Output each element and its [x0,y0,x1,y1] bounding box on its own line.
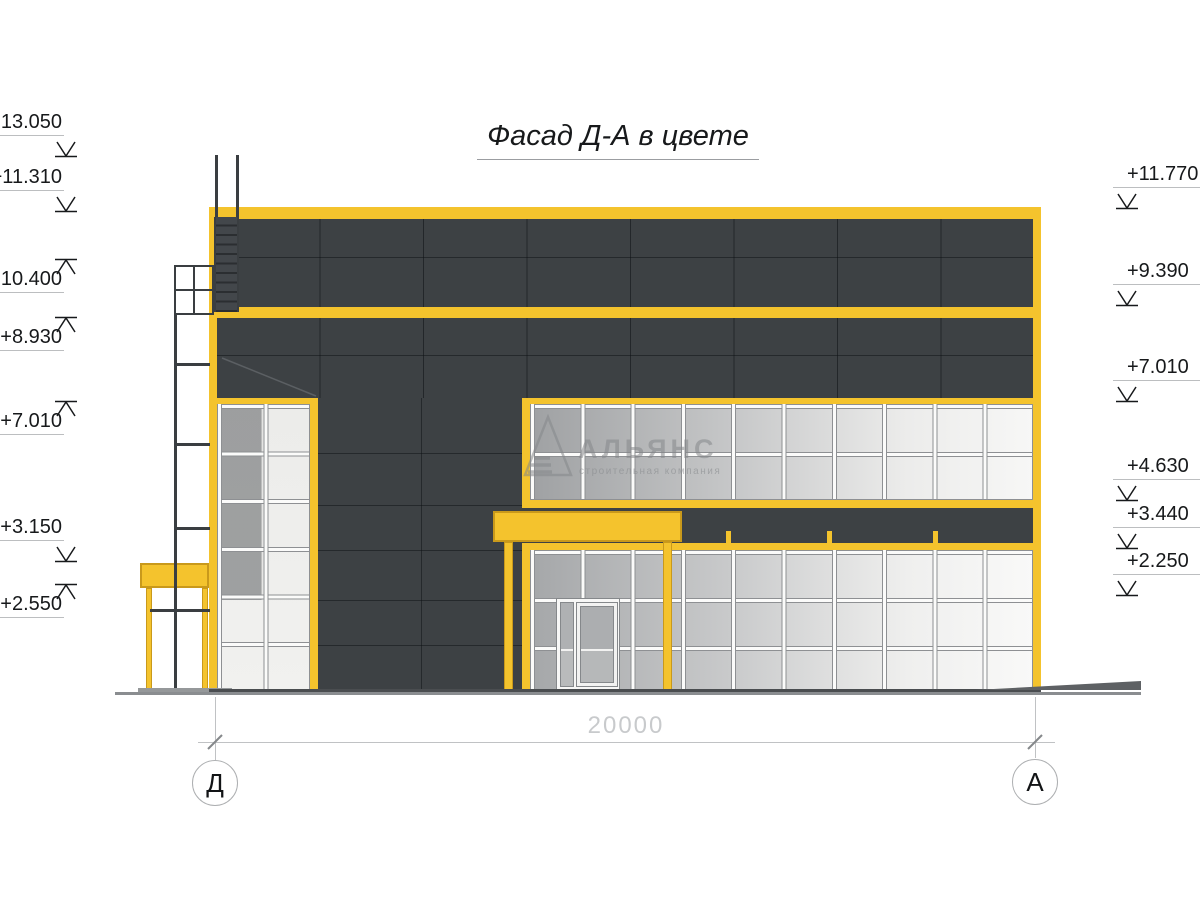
ladder-tie [150,609,210,612]
facade-band-lower [217,318,1033,398]
watermark: АЛЬЯНС строительная компания [522,412,722,484]
leader-line [1113,380,1200,381]
elevation-marker: +7.010 [0,402,78,460]
mullion-tick [933,531,938,543]
drawing-title: Фасад Д-А в цвете [477,120,759,160]
elevation-arrow-up-icon [54,314,78,336]
axis-label-d: Д [206,768,224,799]
elevation-arrow-down-icon [1115,190,1139,212]
leader-line [1113,574,1200,575]
roof-band [209,207,1041,219]
elevation-value: +8.930 [0,326,62,349]
canopy-post-right [663,542,672,691]
roof-ladder-rail-right [236,155,239,219]
floor-divider-band [209,307,1041,318]
panel-joint [318,505,522,506]
watermark-tagline: строительная компания [579,466,721,477]
side-canopy-post [202,588,208,692]
wall-ladder [214,217,239,312]
elevation-marker: +2.250 [1113,553,1200,611]
facade-band-upper [217,219,1033,307]
watermark-company: АЛЬЯНС [578,434,718,465]
leader-line [0,617,64,618]
door-leaf [576,602,618,687]
storefront-frame-left [522,543,530,692]
extension-line-left [215,697,216,760]
elevation-marker: +2.550 [0,585,78,643]
elevation-value: +13.050 [0,111,62,134]
watermark-triangle-icon [522,414,574,478]
storefront-frame-top [522,543,1041,550]
window-frame-right [310,398,318,692]
panel-joint [318,600,522,601]
elevation-arrow-down-icon [1115,383,1139,405]
ground-line [115,692,1141,695]
elevation-value: +4.630 [1127,455,1189,478]
side-canopy-post [146,588,152,692]
elevation-marker: +9.390 [1113,263,1200,321]
elevation-value: +10.400 [0,268,62,291]
elevation-arrow-up-icon [54,398,78,420]
elevation-value: +9.390 [1127,260,1189,283]
elevation-marker: +3.150 [0,519,78,577]
elevation-marker: +13.050 [0,114,78,172]
facade-mid-column [318,398,522,692]
elevation-value: +2.250 [1127,550,1189,573]
elevation-marker: +7.010 [1113,359,1200,417]
leader-line [1113,284,1200,285]
leader-line [0,292,64,293]
left-window-column [209,398,318,692]
leader-line [1113,187,1200,188]
elevation-arrow-down-icon [1115,530,1139,552]
extension-line-right [1035,697,1036,758]
facade-drawing-canvas: Фасад Д-А в цвете [0,0,1200,900]
elevation-arrow-up-icon [54,581,78,603]
fire-escape-rail [174,315,177,692]
axis-bubble-a: А [1012,759,1058,805]
ladder-tie [176,363,210,366]
elevation-value: +3.150 [0,516,62,539]
leader-line [0,135,64,136]
ribbon-frame-right [1033,398,1041,508]
panel-joint [318,550,522,551]
elevation-value: +11.770 [1127,163,1198,186]
dimension-label: 20000 [576,712,676,740]
dimension-line [198,742,1055,743]
roof-ladder-rail-left [215,155,218,219]
leader-line [0,350,64,351]
panel-joint [318,645,522,646]
elevation-value: +2.550 [0,593,62,616]
window-glazing [217,404,310,690]
panel-joint [421,398,422,692]
window-frame-left [209,398,217,692]
elevation-arrow-down-icon [54,543,78,565]
panel-joint [318,453,522,454]
ladder-tie [176,527,210,530]
elevation-arrow-down-icon [1115,577,1139,599]
mullion-tick [726,531,731,543]
leader-line [1113,527,1200,528]
cage-bar [176,289,212,291]
ladder-cage [174,265,214,315]
ribbon-frame-bottom [522,500,1041,508]
leader-line [1113,479,1200,480]
elevation-value: +11.310 [0,166,62,189]
elevation-marker: +8.930 [0,318,78,376]
leader-line [0,540,64,541]
elevation-value: +7.010 [0,410,62,433]
panel-joint [217,355,1033,356]
door-sidelight [560,602,574,687]
elevation-arrow-up-icon [54,256,78,278]
elevation-arrow-down-icon [54,138,78,160]
axis-label-a: А [1026,767,1043,798]
entrance-canopy [493,511,682,542]
axis-bubble-d: Д [192,760,238,806]
elevation-marker: +10.400 [0,260,78,318]
panel-joint [217,257,1033,258]
elevation-arrow-down-icon [1115,287,1139,309]
elevation-value: +3.440 [1127,503,1189,526]
mullion-tick [827,531,832,543]
elevation-marker: +11.310 [0,169,78,227]
door-glass [580,606,614,683]
ladder-tie [176,443,210,446]
storefront-frame-right [1033,543,1041,692]
elevation-arrow-down-icon [54,193,78,215]
leader-line [0,190,64,191]
elevation-marker: +11.770 [1113,166,1200,224]
canopy-post-left [504,542,513,691]
entrance-door [556,598,620,690]
elevation-arrow-down-icon [1115,482,1139,504]
elevation-value: +7.010 [1127,356,1189,379]
leader-line [0,434,64,435]
